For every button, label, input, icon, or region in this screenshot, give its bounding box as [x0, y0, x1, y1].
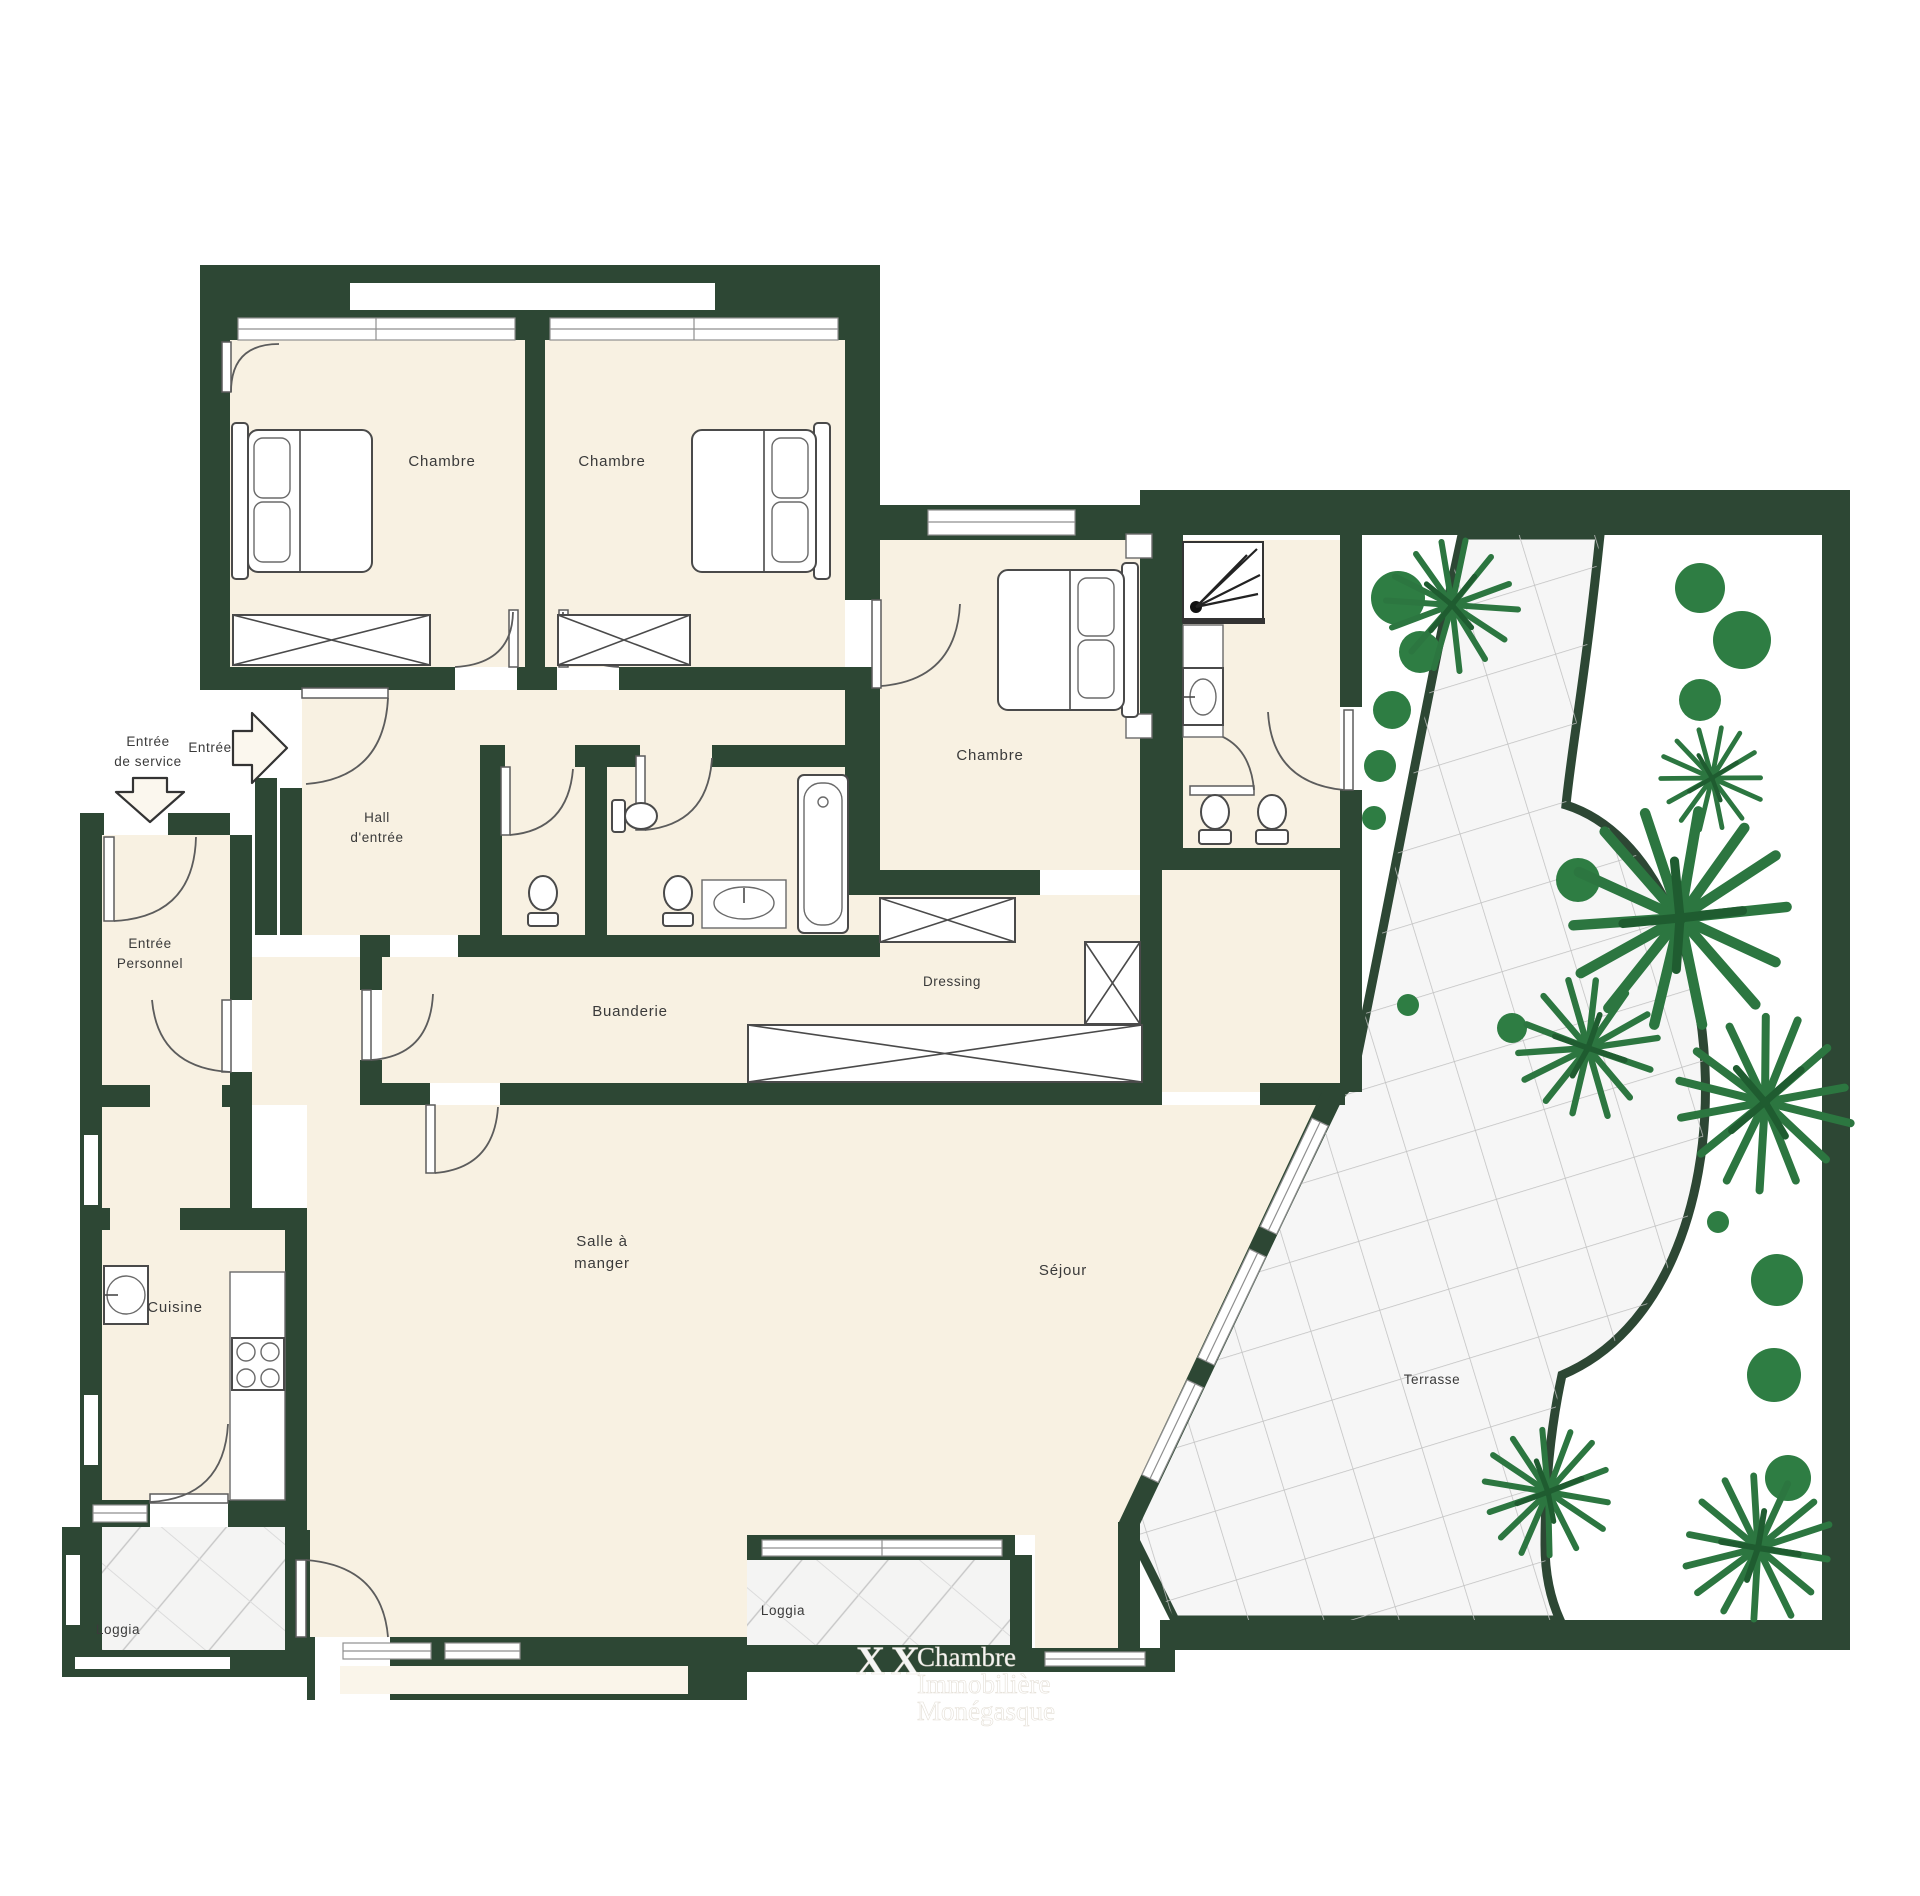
label-terrace: Terrasse — [1404, 1372, 1461, 1387]
label-service-entrance-2: de service — [114, 754, 182, 769]
bottom-wall-recess — [340, 1666, 688, 1694]
loggia-wall-slot — [75, 1657, 230, 1669]
center-loggia-window — [762, 1540, 1002, 1556]
watermark-line-3: Monégasque — [917, 1696, 1055, 1726]
watermark-line-1: Chambre — [917, 1642, 1016, 1672]
left-wall-slot-1 — [84, 1135, 98, 1205]
shower-room-sink — [1183, 625, 1223, 737]
label-bedroom2: Chambre — [578, 453, 645, 470]
wardrobe-dressing-top — [880, 898, 1015, 942]
toilet-wc1 — [1199, 795, 1231, 844]
label-hall-1: Hall — [364, 810, 390, 825]
bed-bedroom2 — [692, 423, 830, 579]
toilet-wc2 — [1256, 795, 1288, 844]
watermark-line-2: Immobilière — [917, 1669, 1050, 1699]
bedroom1-window — [238, 318, 515, 340]
top-wall-recess — [350, 283, 715, 310]
wardrobe-dressing-bottom — [748, 1025, 1142, 1082]
label-staff-entrance-1: Entrée — [128, 936, 171, 951]
label-kitchen: Cuisine — [147, 1299, 203, 1316]
label-bedroom3: Chambre — [956, 747, 1023, 764]
left-wall-slot-3 — [66, 1555, 80, 1625]
label-dining-2: manger — [574, 1255, 630, 1272]
label-loggia-center: Loggia — [761, 1603, 805, 1618]
label-entrance: Entrée — [188, 740, 231, 755]
label-service-entrance-1: Entrée — [126, 734, 169, 749]
left-wall-slot-2 — [84, 1395, 98, 1465]
kitchen-sink — [104, 1266, 148, 1324]
bed-bedroom1 — [232, 423, 372, 579]
floor-plan: Chambre Chambre Chambre Hall d'entrée En… — [0, 0, 1920, 1896]
toilet-bathroom — [612, 800, 657, 832]
label-bedroom1: Chambre — [408, 453, 475, 470]
storage-floor — [1162, 870, 1340, 1092]
label-hall-2: d'entrée — [350, 830, 403, 845]
watermark-logo-text: XX — [856, 1638, 926, 1683]
stove — [232, 1338, 284, 1390]
label-dressing: Dressing — [923, 974, 981, 989]
toilet-wc-small — [528, 876, 558, 926]
label-laundry: Buanderie — [592, 1003, 668, 1020]
main-entrance-arrow-icon — [233, 713, 287, 783]
shower — [1183, 542, 1265, 624]
bathtub — [798, 775, 848, 933]
label-staff-entrance-2: Personnel — [117, 956, 183, 971]
master-bedroom-window — [928, 510, 1075, 535]
bathroom-sink — [702, 880, 786, 928]
bidet — [663, 876, 693, 926]
wardrobe-bedroom2 — [558, 615, 690, 665]
label-living: Séjour — [1039, 1262, 1087, 1279]
label-dining-1: Salle à — [576, 1233, 627, 1250]
bedroom2-window — [550, 318, 838, 340]
label-loggia-left: Loggia — [96, 1622, 140, 1637]
kitchen-window — [93, 1505, 147, 1522]
wardrobe-bedroom1 — [233, 615, 430, 665]
corridor-floor — [252, 957, 362, 1105]
floor-plan-page: Chambre Chambre Chambre Hall d'entrée En… — [0, 0, 1920, 1896]
wardrobe-dressing-right — [1085, 942, 1140, 1024]
watermark-diamond-icon — [836, 1684, 920, 1768]
